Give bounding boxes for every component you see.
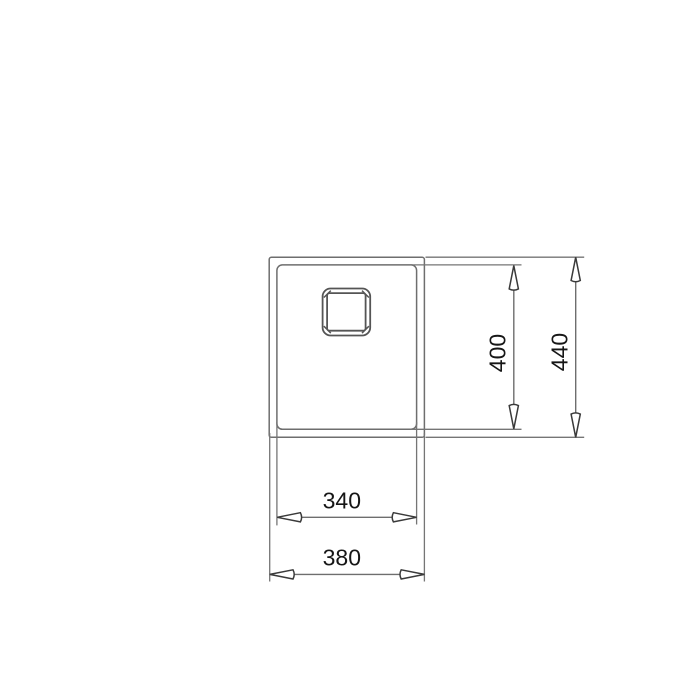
svg-text:440: 440 [547,333,573,371]
svg-text:380: 380 [323,545,361,571]
svg-text:340: 340 [323,488,361,514]
svg-text:400: 400 [485,334,511,372]
